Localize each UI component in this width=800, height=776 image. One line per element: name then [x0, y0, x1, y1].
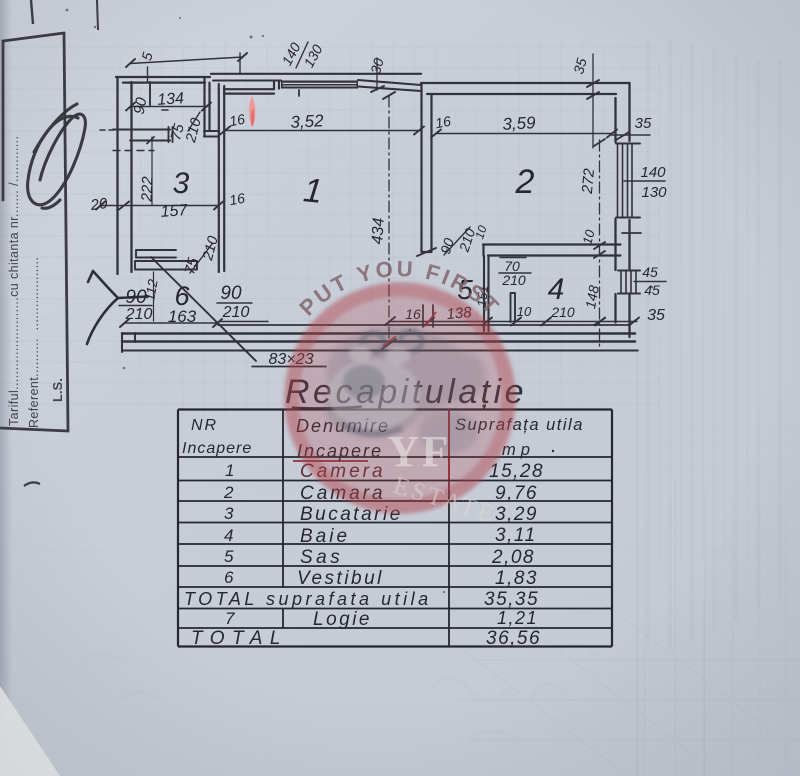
- svg-text:163: 163: [168, 307, 197, 326]
- svg-text:2: 2: [515, 163, 535, 201]
- svg-text:3,52: 3,52: [290, 111, 325, 132]
- svg-text:YF: YF: [388, 427, 451, 476]
- svg-text:Logie: Logie: [313, 609, 372, 630]
- svg-text:210: 210: [222, 304, 250, 321]
- svg-text:2,08: 2,08: [491, 547, 535, 568]
- svg-text:L.S.: L.S.: [50, 378, 65, 402]
- svg-text:NR: NR: [191, 417, 218, 434]
- svg-text:5: 5: [224, 547, 234, 566]
- svg-text:Referent.......... ..........: Referent.......... ...................: [27, 257, 41, 428]
- svg-text:15,28: 15,28: [489, 461, 544, 482]
- svg-text:35: 35: [647, 307, 665, 324]
- svg-text:210: 210: [501, 272, 526, 288]
- svg-text:3: 3: [224, 504, 234, 523]
- svg-text:TOTAL suprafata utila: TOTAL suprafata utila: [184, 589, 432, 609]
- svg-text:140: 140: [640, 164, 666, 181]
- svg-text:35,35: 35,35: [484, 589, 539, 610]
- svg-text:134: 134: [157, 90, 185, 109]
- svg-text:130: 130: [641, 184, 667, 201]
- svg-text:16: 16: [228, 190, 246, 208]
- svg-text:16: 16: [228, 111, 246, 129]
- svg-text:45: 45: [644, 282, 660, 298]
- svg-text:3: 3: [173, 167, 190, 200]
- svg-text:1: 1: [302, 171, 325, 211]
- svg-text:Incapere: Incapere: [182, 440, 252, 457]
- svg-text:90: 90: [220, 283, 242, 304]
- svg-text:Sas: Sas: [300, 547, 343, 568]
- svg-text:3,59: 3,59: [502, 113, 537, 134]
- svg-text:35: 35: [635, 115, 652, 132]
- svg-text:10: 10: [517, 304, 532, 319]
- svg-text:mp: mp: [502, 441, 535, 459]
- svg-text:36,56: 36,56: [486, 628, 541, 649]
- svg-text:4: 4: [224, 526, 233, 545]
- svg-text:1,83: 1,83: [495, 568, 538, 589]
- svg-text:Baie: Baie: [300, 526, 350, 547]
- svg-text:Tariful.......................: Tariful........................cu chitan…: [7, 136, 21, 426]
- svg-text:45: 45: [642, 264, 658, 280]
- svg-text:6: 6: [224, 568, 234, 587]
- svg-text:TOTAL: TOTAL: [191, 628, 288, 649]
- svg-text:1: 1: [225, 461, 234, 480]
- svg-text:157: 157: [160, 202, 189, 221]
- svg-text:3,11: 3,11: [495, 525, 537, 546]
- svg-text:9,76: 9,76: [495, 483, 538, 504]
- svg-text:222: 222: [139, 176, 157, 203]
- svg-text:7: 7: [225, 609, 235, 628]
- svg-text:90: 90: [125, 287, 147, 308]
- svg-text:Vestibul: Vestibul: [297, 568, 384, 589]
- svg-text:20: 20: [89, 195, 110, 214]
- svg-text:210: 210: [550, 304, 575, 320]
- svg-text:434: 434: [369, 217, 387, 245]
- svg-text:1,21: 1,21: [497, 608, 538, 628]
- svg-text:4: 4: [548, 273, 565, 306]
- svg-text:272: 272: [579, 167, 598, 195]
- svg-text:16: 16: [434, 113, 452, 131]
- svg-text:2: 2: [223, 483, 234, 502]
- svg-text:210: 210: [125, 306, 153, 323]
- svg-text:3,29: 3,29: [495, 504, 538, 525]
